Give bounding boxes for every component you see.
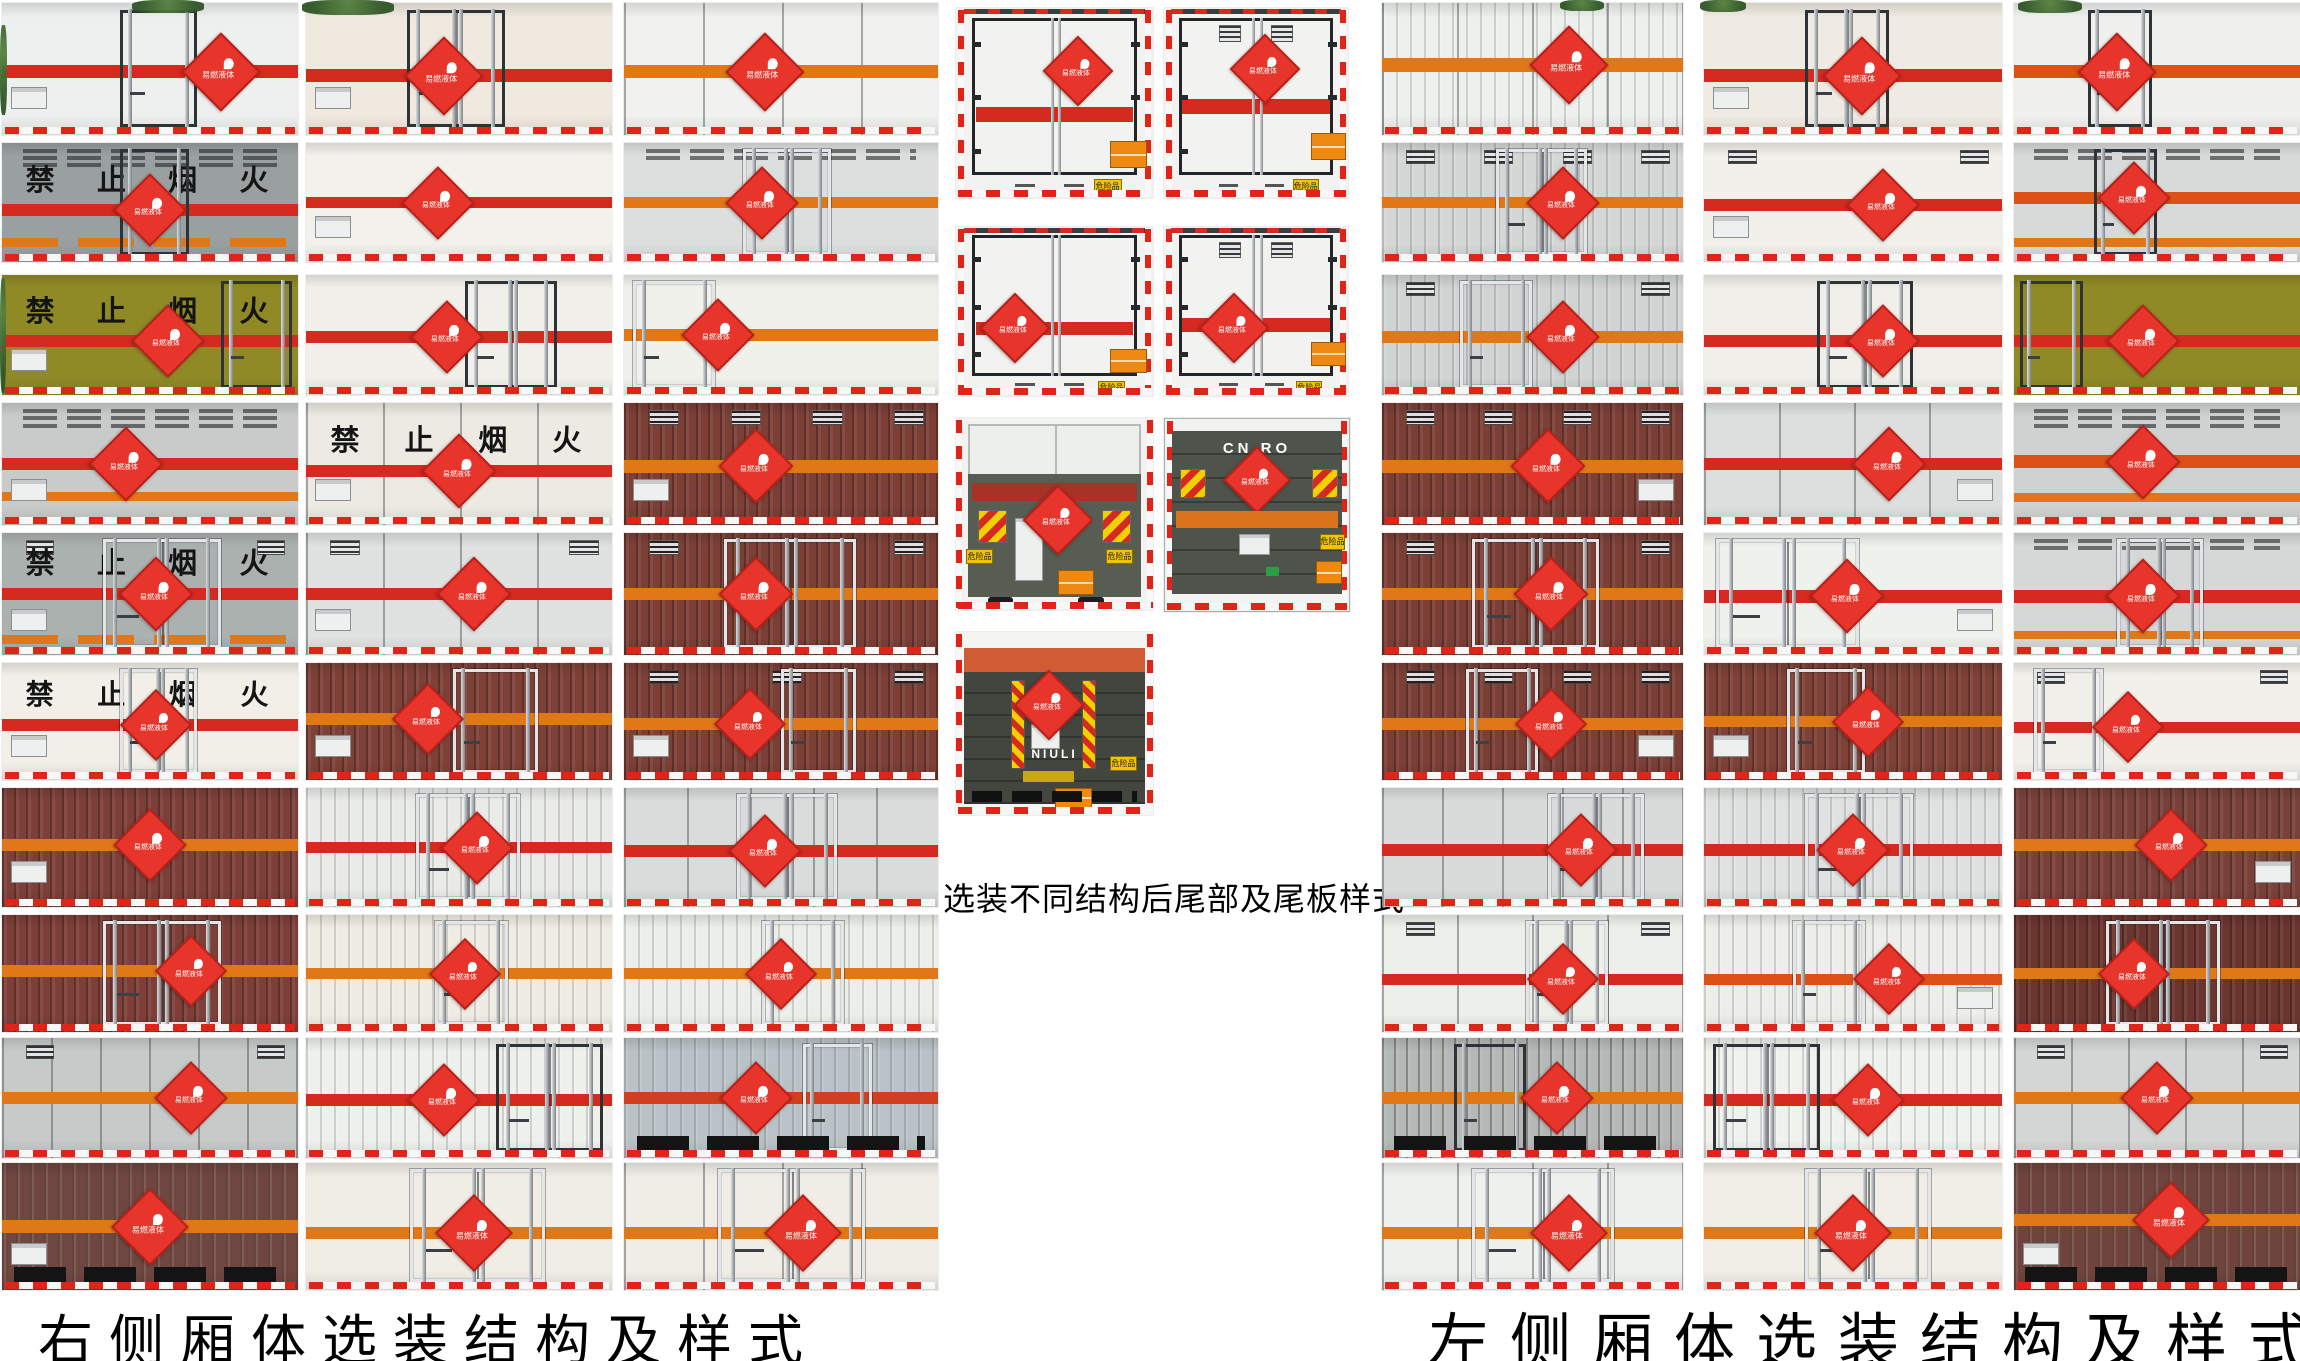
placard-label: 易燃液体 bbox=[1564, 847, 1592, 857]
vehicle-photo-collage: 右侧厢体选装结构及样式 选装不同结构后尾部及尾板样式 左侧厢体选装结构及样式 易… bbox=[0, 0, 2300, 1361]
reflective-strip bbox=[627, 387, 935, 394]
placard-label: 易燃液体 bbox=[449, 971, 477, 981]
info-plate bbox=[1957, 609, 1993, 631]
plate-divider bbox=[1111, 154, 1146, 156]
reflective-strip bbox=[1707, 1024, 1999, 1031]
vent-grille bbox=[894, 670, 924, 684]
placard-label: 易燃液体 bbox=[733, 721, 761, 731]
vent-grille bbox=[1219, 242, 1241, 258]
flame-icon bbox=[129, 451, 139, 462]
door-lock-rod bbox=[113, 538, 117, 649]
door-lock-rod bbox=[1058, 235, 1061, 375]
orange-hazmat-plate bbox=[1110, 141, 1147, 168]
vent-grille bbox=[1271, 25, 1293, 42]
left-side-photo-13: 易燃液体 bbox=[1704, 275, 2002, 395]
flame-icon bbox=[765, 190, 775, 201]
secondary-stripe bbox=[2014, 493, 2300, 502]
vent-slats bbox=[23, 416, 278, 420]
cargo-door bbox=[221, 281, 292, 388]
info-plate bbox=[1713, 735, 1749, 757]
reflective-strip bbox=[309, 1150, 609, 1157]
vent-grille bbox=[2260, 1045, 2288, 1059]
chevron-marker bbox=[1180, 469, 1206, 498]
placard-label: 易燃液体 bbox=[2118, 195, 2146, 205]
reflective-strip bbox=[2017, 127, 2297, 134]
door-lock-rod bbox=[1806, 1043, 1810, 1152]
door-latch bbox=[1733, 615, 1760, 618]
hinge bbox=[972, 305, 981, 310]
door-lock-rod bbox=[1252, 18, 1255, 176]
placard-label: 易燃液体 bbox=[443, 469, 471, 479]
door-latch bbox=[426, 1249, 452, 1252]
placard-label: 易燃液体 bbox=[1062, 68, 1090, 78]
door-lock-rod bbox=[589, 1043, 593, 1152]
right-side-photo-26: 易燃液体 bbox=[624, 663, 938, 780]
left-side-photo-12: 易燃液体 bbox=[1704, 143, 2002, 262]
right-side-photo-25: 易燃液体 bbox=[624, 533, 938, 655]
door-lock-rod bbox=[1853, 920, 1857, 1026]
vent-grille bbox=[731, 410, 761, 424]
right-side-photo-16: 易燃液体 bbox=[306, 663, 612, 780]
reflective-strip bbox=[309, 899, 609, 906]
reflective-strip bbox=[964, 9, 1145, 14]
flame-icon bbox=[2136, 961, 2145, 971]
info-plate bbox=[11, 479, 47, 501]
flame-icon bbox=[768, 58, 778, 69]
hinge bbox=[1131, 305, 1140, 310]
placard-label: 易燃液体 bbox=[1534, 591, 1562, 601]
vent-grille bbox=[1960, 150, 1989, 164]
info-plate bbox=[315, 735, 351, 757]
right-side-photo-7: 易燃液体 bbox=[2, 788, 298, 907]
flame-icon bbox=[805, 1220, 815, 1231]
right-side-photo-9: 易燃液体 bbox=[2, 1038, 298, 1158]
door-lock-rod bbox=[1468, 280, 1472, 389]
flame-icon bbox=[1553, 581, 1563, 592]
placard-label: 易燃液体 bbox=[1831, 594, 1859, 604]
reflective-strip bbox=[2017, 1024, 2297, 1031]
right-side-photo-28: 易燃液体 bbox=[624, 915, 938, 1032]
placard-label: 易燃液体 bbox=[421, 200, 449, 210]
hinge bbox=[1131, 95, 1140, 100]
cargo-door bbox=[803, 1044, 872, 1151]
warning-stripe bbox=[976, 107, 1134, 122]
left-side-photo-23: 易燃液体 bbox=[2014, 275, 2300, 395]
right-side-photo-24: 易燃液体 bbox=[624, 403, 938, 525]
placard-label: 易燃液体 bbox=[1834, 1230, 1866, 1241]
door-lock-rod bbox=[508, 280, 512, 389]
warning-stripe bbox=[1182, 99, 1329, 114]
reflective-strip bbox=[1707, 387, 1999, 394]
placard-label: 易燃液体 bbox=[456, 1230, 488, 1241]
info-plate bbox=[11, 861, 47, 883]
door-lock-rod bbox=[1792, 538, 1796, 649]
reflective-strip bbox=[1385, 772, 1680, 779]
door-lock-rod bbox=[2206, 920, 2210, 1026]
flame-icon bbox=[1870, 709, 1879, 719]
reflective-strip bbox=[309, 772, 609, 779]
vent-grille bbox=[649, 540, 679, 554]
no-smoking-char: 禁 bbox=[26, 673, 54, 713]
right-side-photo-19: 易燃液体 bbox=[306, 1038, 612, 1158]
left-side-photo-26: 易燃液体 bbox=[2014, 663, 2300, 780]
door-latch bbox=[791, 741, 805, 744]
cargo-door bbox=[496, 1044, 603, 1151]
door-lock-rod bbox=[840, 538, 844, 649]
hinge bbox=[1328, 257, 1337, 262]
door-latch bbox=[1064, 184, 1084, 187]
reflective-strip bbox=[2017, 647, 2297, 654]
indicator-light bbox=[1266, 567, 1279, 577]
reflective-strip bbox=[2017, 1282, 2297, 1289]
vent-grille bbox=[1728, 150, 1757, 164]
reflective-strip bbox=[5, 254, 295, 261]
placard-label: 易燃液体 bbox=[134, 207, 162, 217]
right-side-photo-20: 易燃液体 bbox=[306, 1163, 612, 1290]
door-lock-rod bbox=[2041, 668, 2045, 774]
warning-stripe bbox=[1176, 511, 1338, 528]
left-side-photo-25: 易燃液体 bbox=[2014, 533, 2300, 655]
door-lock-rod bbox=[1051, 18, 1054, 176]
reflective-strip bbox=[1707, 1150, 1999, 1157]
flame-icon bbox=[1565, 190, 1575, 201]
placard-label: 易燃液体 bbox=[1866, 202, 1894, 212]
reflective-strip bbox=[627, 254, 935, 261]
door-seam bbox=[549, 1047, 551, 1148]
tree-foliage bbox=[132, 0, 204, 13]
placard-label: 易燃液体 bbox=[1866, 338, 1894, 348]
hinge bbox=[1179, 149, 1188, 154]
reflective-strip bbox=[1167, 603, 1347, 610]
vent-grille bbox=[1484, 410, 1513, 424]
tree-foliage bbox=[1700, 0, 1746, 12]
vent-slats bbox=[23, 409, 278, 413]
reflective-strip bbox=[309, 1024, 609, 1031]
cargo-door bbox=[1454, 1044, 1526, 1151]
reflective-strip bbox=[627, 647, 935, 654]
flame-icon bbox=[783, 961, 792, 971]
flame-icon bbox=[461, 459, 471, 470]
door-lock-rod bbox=[1474, 668, 1478, 774]
no-smoking-char: 火 bbox=[240, 673, 268, 713]
door-lock-rod bbox=[849, 1168, 853, 1283]
reflective-edge bbox=[1340, 229, 1346, 395]
tree-foliage bbox=[2018, 0, 2082, 13]
chevron-marker bbox=[978, 510, 1008, 543]
door-latch bbox=[1265, 383, 1283, 386]
bottom-slots bbox=[14, 1267, 286, 1282]
orange-hazmat-plate bbox=[1311, 342, 1346, 366]
info-plate bbox=[1957, 987, 1993, 1009]
placard-label: 易燃液体 bbox=[202, 69, 234, 80]
door-latch bbox=[117, 615, 139, 618]
no-smoking-char: 烟 bbox=[478, 417, 507, 459]
placard-label: 易燃液体 bbox=[1032, 702, 1060, 712]
hinge bbox=[1328, 305, 1337, 310]
reflective-strip bbox=[309, 1282, 609, 1289]
placard-label: 易燃液体 bbox=[1042, 517, 1070, 527]
placard-label: 易燃液体 bbox=[1872, 977, 1900, 987]
placard-label: 易燃液体 bbox=[175, 1095, 203, 1105]
placard-label: 易燃液体 bbox=[2126, 594, 2154, 604]
reflective-strip bbox=[5, 127, 295, 134]
no-smoking-char: 火 bbox=[239, 540, 268, 582]
chevron-marker bbox=[1102, 510, 1132, 543]
door-latch bbox=[2103, 223, 2114, 226]
door-latch bbox=[1064, 383, 1084, 386]
top-flap-panel bbox=[968, 424, 1141, 478]
flame-icon bbox=[224, 58, 234, 69]
reflective-strip bbox=[1385, 1024, 1680, 1031]
tree-foliage bbox=[0, 25, 7, 115]
flame-icon bbox=[152, 1213, 162, 1224]
vent-grille bbox=[1641, 282, 1670, 296]
reflective-strip bbox=[627, 1024, 935, 1031]
reflective-strip bbox=[5, 517, 295, 524]
info-plate bbox=[2023, 1243, 2059, 1265]
vent-grille bbox=[1641, 540, 1670, 554]
door-lock-rod bbox=[1770, 1043, 1774, 1152]
reflective-strip bbox=[309, 387, 609, 394]
vent-grille bbox=[1406, 150, 1435, 164]
no-smoking-char: 止 bbox=[404, 417, 433, 459]
info-plate bbox=[1713, 216, 1749, 238]
door-lock-rod bbox=[545, 1043, 549, 1152]
info-plate bbox=[633, 735, 669, 757]
reflective-strip bbox=[1385, 517, 1680, 524]
reflective-strip bbox=[309, 647, 609, 654]
flame-icon bbox=[431, 707, 440, 717]
rear-photo-7: 易燃液体NIULI危险品 bbox=[956, 632, 1153, 815]
placard-label: 易燃液体 bbox=[739, 464, 767, 474]
right-side-photo-30: 易燃液体 bbox=[624, 1163, 938, 1290]
door-latch bbox=[1803, 993, 1816, 996]
plate-divider bbox=[1111, 360, 1146, 362]
vent-grille bbox=[1641, 670, 1670, 684]
vent-grille bbox=[649, 410, 679, 424]
reflective-strip bbox=[5, 647, 295, 654]
left-side-photo-6: 易燃液体 bbox=[1382, 663, 1683, 780]
vent-grille bbox=[2260, 670, 2288, 684]
warning-stripe bbox=[2014, 65, 2300, 78]
placard-label: 易燃液体 bbox=[1837, 847, 1865, 857]
door-lock-rod bbox=[642, 280, 646, 389]
cargo-door bbox=[1793, 921, 1865, 1025]
right-side-photo-27: 易燃液体 bbox=[624, 788, 938, 907]
reflective-strip bbox=[1166, 190, 1346, 197]
placard-label: 易燃液体 bbox=[412, 716, 440, 726]
plate-divider bbox=[1312, 146, 1345, 148]
door-latch bbox=[1219, 383, 1237, 386]
flame-icon bbox=[446, 62, 456, 73]
placard-label: 易燃液体 bbox=[430, 335, 458, 345]
reflective-edge bbox=[1340, 10, 1346, 196]
orange-hazmat-plate bbox=[1316, 561, 1342, 584]
reflective-strip bbox=[5, 1282, 295, 1289]
placard-label: 易燃液体 bbox=[702, 332, 730, 342]
orange-hazmat-plate bbox=[1110, 349, 1147, 373]
rear-photo-4: 易燃液体危险品 bbox=[1164, 227, 1348, 396]
door-lock-rod bbox=[1521, 280, 1525, 389]
reflective-strip bbox=[964, 228, 1145, 233]
door-lock-rod bbox=[789, 668, 793, 774]
placard-label: 易燃液体 bbox=[747, 69, 779, 80]
tree-foliage bbox=[1560, 0, 1604, 11]
left-side-photo-5: 易燃液体 bbox=[1382, 533, 1683, 655]
reflective-strip bbox=[5, 387, 295, 394]
info-plate bbox=[11, 1243, 47, 1265]
left-side-photo-17: 易燃液体 bbox=[1704, 788, 2002, 907]
reflective-edge bbox=[1145, 10, 1151, 196]
door-lock-rod bbox=[831, 920, 835, 1026]
placard-label: 易燃液体 bbox=[2126, 459, 2154, 469]
door-lock-rod bbox=[1723, 1043, 1727, 1152]
door-lock-rod bbox=[1763, 1043, 1767, 1152]
flame-icon bbox=[1553, 712, 1562, 722]
placard-label: 易燃液体 bbox=[2118, 971, 2146, 981]
reflective-strip bbox=[627, 772, 935, 779]
reflective-strip bbox=[1707, 772, 1999, 779]
vent-grille bbox=[1563, 410, 1592, 424]
door-lock-rod bbox=[2190, 538, 2194, 649]
door-lock-rod bbox=[491, 9, 495, 129]
reflective-strip bbox=[1707, 1282, 1999, 1289]
door-lock-rod bbox=[1260, 235, 1263, 375]
left-side-photo-14: 易燃液体 bbox=[1704, 403, 2002, 525]
hinge bbox=[972, 257, 981, 262]
door-lock-rod bbox=[1252, 235, 1255, 375]
tree-foliage bbox=[0, 278, 6, 393]
right-side-photo-5: 禁止烟火易燃液体 bbox=[2, 533, 298, 655]
dangerous-goods-plate: 危险品 bbox=[1110, 756, 1138, 771]
hinge bbox=[1131, 42, 1140, 47]
door-latch bbox=[1464, 1119, 1477, 1122]
vent-grille bbox=[1406, 540, 1435, 554]
door-lock-rod bbox=[552, 1043, 556, 1152]
bottom-slots bbox=[2025, 1267, 2288, 1282]
reflective-strip bbox=[1385, 254, 1680, 261]
hinge bbox=[1328, 42, 1337, 47]
cargo-door bbox=[2034, 669, 2103, 773]
no-smoking-char: 火 bbox=[239, 157, 268, 199]
left-side-photo-15: 易燃液体 bbox=[1704, 533, 2002, 655]
door-lock-rod bbox=[526, 668, 530, 774]
left-side-photo-22: 易燃液体 bbox=[2014, 143, 2300, 262]
reflective-strip bbox=[5, 899, 295, 906]
bottom-slots bbox=[1394, 1136, 1671, 1150]
no-smoking-char: 禁 bbox=[330, 417, 359, 459]
flap-seam bbox=[1055, 426, 1057, 476]
right-side-photo-15: 易燃液体 bbox=[306, 533, 612, 655]
placard-label: 易燃液体 bbox=[1540, 1095, 1568, 1105]
left-side-photo-4: 易燃液体 bbox=[1382, 403, 1683, 525]
door-lock-rod bbox=[113, 920, 117, 1026]
door-latch bbox=[1476, 741, 1489, 744]
orange-hazmat-plate bbox=[1311, 133, 1346, 160]
right-side-photo-8: 易燃液体 bbox=[2, 915, 298, 1032]
right-side-photo-17: 易燃液体 bbox=[306, 788, 612, 907]
right-side-photo-10: 易燃液体 bbox=[2, 1163, 298, 1290]
right-side-photo-4: 易燃液体 bbox=[2, 403, 298, 525]
reflective-strip bbox=[2017, 387, 2297, 394]
placard-label: 易燃液体 bbox=[1531, 464, 1559, 474]
door-latch bbox=[1470, 356, 1483, 359]
flame-icon bbox=[758, 581, 768, 592]
reflective-strip bbox=[1707, 254, 1999, 261]
left-side-photo-16: 易燃液体 bbox=[1704, 663, 2002, 780]
info-plate bbox=[633, 479, 669, 501]
placard-label: 易燃液体 bbox=[746, 200, 774, 210]
rear-photo-6: CN RO易燃液体危险品 bbox=[1164, 418, 1350, 612]
door-latch bbox=[477, 356, 494, 359]
door-lock-rod bbox=[529, 1168, 533, 1283]
door-lock-rod bbox=[2072, 280, 2076, 389]
vent-slats bbox=[2034, 416, 2280, 420]
hinge bbox=[1179, 95, 1188, 100]
reflective-strip bbox=[5, 1024, 295, 1031]
info-plate bbox=[11, 349, 47, 371]
placard-label: 易燃液体 bbox=[427, 1098, 455, 1108]
placard-label: 易燃液体 bbox=[2141, 1095, 2169, 1105]
reflective-strip bbox=[1385, 899, 1680, 906]
vent-slats bbox=[2034, 424, 2280, 428]
reflective-strip bbox=[627, 1150, 935, 1157]
placard-label: 易燃液体 bbox=[739, 591, 767, 601]
reflective-strip bbox=[958, 388, 1151, 395]
door-latch bbox=[1508, 223, 1525, 226]
vent-grille bbox=[26, 1045, 55, 1059]
door-lock-rod bbox=[229, 280, 233, 389]
placard-label: 易燃液体 bbox=[2112, 725, 2140, 735]
vent-grille bbox=[649, 670, 679, 684]
reflective-edge bbox=[1147, 634, 1153, 813]
door-latch bbox=[464, 741, 480, 744]
placard-label: 易燃液体 bbox=[140, 722, 168, 732]
vent-grille bbox=[1563, 670, 1592, 684]
door-latch bbox=[1798, 741, 1812, 744]
reflective-strip bbox=[627, 1282, 935, 1289]
vent-slats bbox=[2034, 409, 2280, 413]
placard-label: 易燃液体 bbox=[1872, 461, 1900, 471]
placard-label: 易燃液体 bbox=[425, 73, 457, 84]
placard-label: 易燃液体 bbox=[999, 326, 1027, 336]
door-latch bbox=[2043, 741, 2056, 744]
rear-photo-1: 易燃液体危险品 bbox=[956, 8, 1153, 198]
door-latch bbox=[130, 92, 144, 95]
door-lock-rod bbox=[1051, 235, 1054, 375]
plate-divider bbox=[1059, 582, 1092, 584]
placard-label: 易燃液体 bbox=[2153, 1217, 2185, 1228]
reflective-strip bbox=[1385, 1282, 1680, 1289]
placard-label: 易燃液体 bbox=[749, 848, 777, 858]
warning-stripe bbox=[2, 1092, 298, 1104]
door-lock-rod bbox=[1595, 920, 1599, 1026]
placard-label: 易燃液体 bbox=[739, 1095, 767, 1105]
placard-label: 易燃液体 bbox=[110, 461, 138, 471]
reflective-strip bbox=[1707, 647, 1999, 654]
reflective-strip bbox=[1385, 127, 1680, 134]
hinge bbox=[972, 42, 981, 47]
vent-grille bbox=[1406, 410, 1435, 424]
vent-grille bbox=[1271, 242, 1293, 258]
rear-door-frame bbox=[1179, 235, 1334, 375]
info-plate bbox=[1638, 735, 1674, 757]
flame-icon bbox=[480, 835, 490, 846]
reflective-strip bbox=[5, 772, 295, 779]
right-side-photo-29: 易燃液体 bbox=[624, 1038, 938, 1158]
no-smoking-char: 止 bbox=[97, 288, 126, 330]
door-lock-rod bbox=[1631, 793, 1635, 901]
